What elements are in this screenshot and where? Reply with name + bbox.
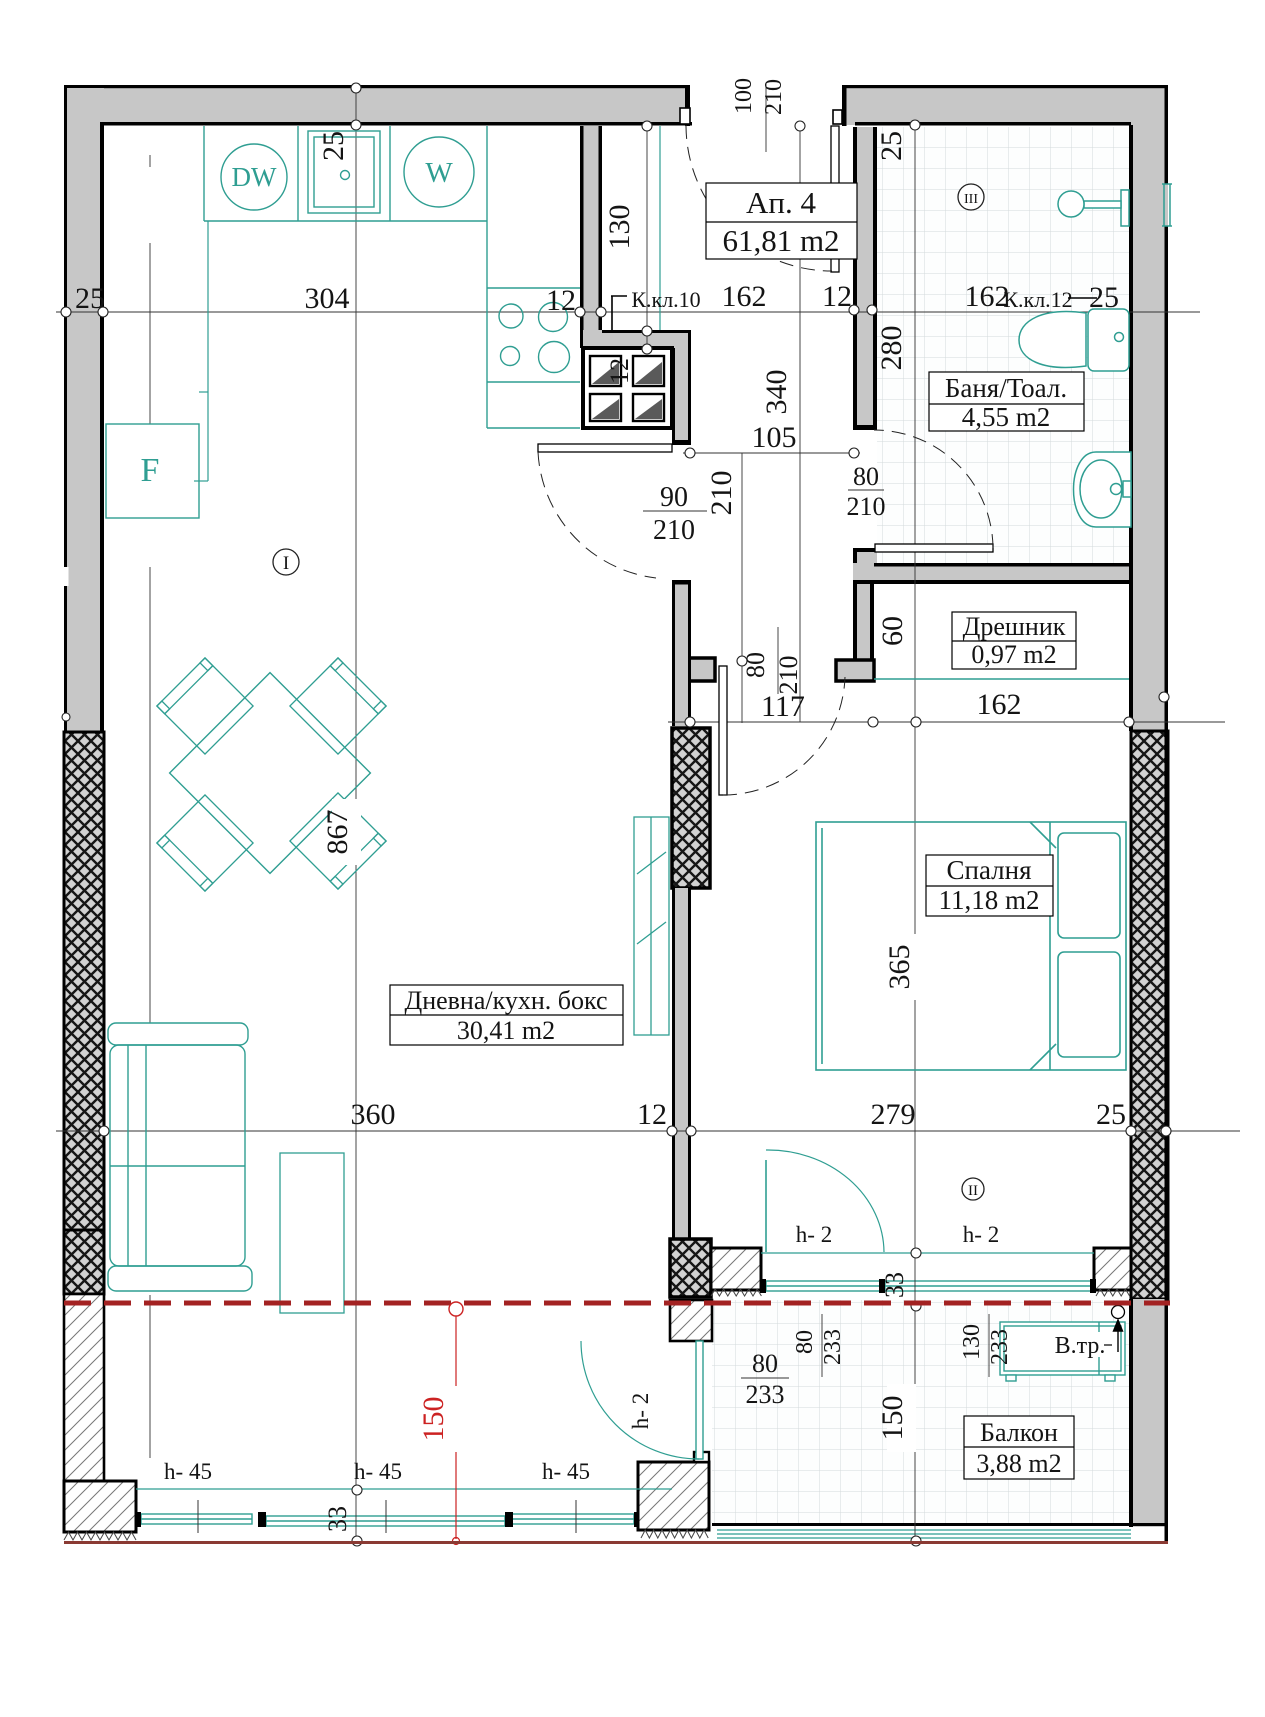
svg-text:h- 2: h- 2 [796, 1222, 832, 1247]
svg-text:150: 150 [876, 1396, 909, 1441]
svg-text:12: 12 [605, 358, 634, 384]
svg-text:25: 25 [1096, 1098, 1126, 1131]
svg-text:340: 340 [760, 370, 793, 415]
svg-text:33: 33 [880, 1272, 909, 1298]
svg-text:30,41 m2: 30,41 m2 [457, 1016, 555, 1045]
svg-text:105: 105 [752, 421, 797, 454]
svg-text:12: 12 [546, 284, 576, 317]
svg-text:117: 117 [761, 690, 805, 723]
svg-text:90: 90 [660, 482, 688, 513]
svg-text:150: 150 [417, 1397, 450, 1442]
svg-text:W: W [425, 157, 453, 189]
svg-text:210: 210 [847, 492, 886, 521]
svg-text:25: 25 [75, 282, 105, 315]
svg-text:II: II [968, 1183, 978, 1199]
svg-text:h- 2: h- 2 [628, 1393, 653, 1429]
svg-text:h- 2: h- 2 [963, 1222, 999, 1247]
svg-text:4,55 m2: 4,55 m2 [962, 402, 1051, 432]
svg-text:100: 100 [731, 78, 757, 114]
svg-text:867: 867 [321, 810, 354, 855]
svg-text:Дрешник: Дрешник [963, 612, 1066, 641]
svg-text:233: 233 [987, 1329, 1013, 1365]
svg-text:DW: DW [232, 162, 277, 192]
svg-text:61,81 m2: 61,81 m2 [722, 223, 839, 258]
svg-text:280: 280 [875, 326, 908, 371]
svg-text:Спалня: Спалня [946, 855, 1031, 885]
svg-text:80: 80 [752, 1349, 778, 1378]
svg-text:233: 233 [746, 1380, 785, 1409]
svg-text:0,97 m2: 0,97 m2 [971, 640, 1056, 669]
svg-text:210: 210 [653, 515, 695, 546]
svg-text:25: 25 [1089, 281, 1119, 314]
svg-text:К.кл.10: К.кл.10 [631, 287, 700, 312]
svg-text:III: III [964, 192, 978, 207]
svg-text:80: 80 [853, 462, 879, 491]
svg-text:h- 45: h- 45 [164, 1459, 212, 1484]
svg-text:130: 130 [959, 1324, 985, 1360]
svg-text:В.тр.: В.тр. [1055, 1333, 1106, 1359]
svg-text:162: 162 [722, 280, 767, 313]
svg-text:60: 60 [876, 616, 909, 646]
svg-text:Балкон: Балкон [980, 1418, 1058, 1447]
svg-text:210: 210 [761, 79, 787, 115]
svg-text:279: 279 [871, 1098, 916, 1131]
svg-text:Баня/Тоал.: Баня/Тоал. [945, 373, 1067, 403]
svg-text:210: 210 [774, 656, 803, 695]
svg-text:11,18 m2: 11,18 m2 [939, 885, 1040, 915]
svg-text:210: 210 [705, 471, 738, 516]
svg-text:h- 45: h- 45 [354, 1459, 402, 1484]
svg-text:304: 304 [305, 282, 350, 315]
svg-text:25: 25 [875, 131, 908, 161]
svg-text:12: 12 [822, 280, 852, 313]
svg-text:Дневна/кухн. бокс: Дневна/кухн. бокс [404, 986, 607, 1015]
svg-text:80: 80 [741, 652, 770, 678]
svg-text:130: 130 [603, 205, 636, 250]
svg-text:360: 360 [351, 1098, 396, 1131]
svg-text:F: F [141, 452, 160, 489]
svg-text:233: 233 [820, 1329, 846, 1365]
svg-text:162: 162 [977, 688, 1022, 721]
svg-text:3,88 m2: 3,88 m2 [976, 1449, 1061, 1478]
svg-text:I: I [283, 553, 289, 574]
svg-text:80: 80 [792, 1330, 818, 1354]
svg-text:365: 365 [883, 945, 916, 990]
svg-text:33: 33 [323, 1506, 352, 1532]
svg-text:12: 12 [637, 1098, 667, 1131]
svg-text:h- 45: h- 45 [542, 1459, 590, 1484]
svg-text:Ап. 4: Ап. 4 [746, 185, 816, 220]
svg-text:К.кл.12: К.кл.12 [1003, 287, 1072, 312]
svg-text:25: 25 [317, 131, 350, 161]
